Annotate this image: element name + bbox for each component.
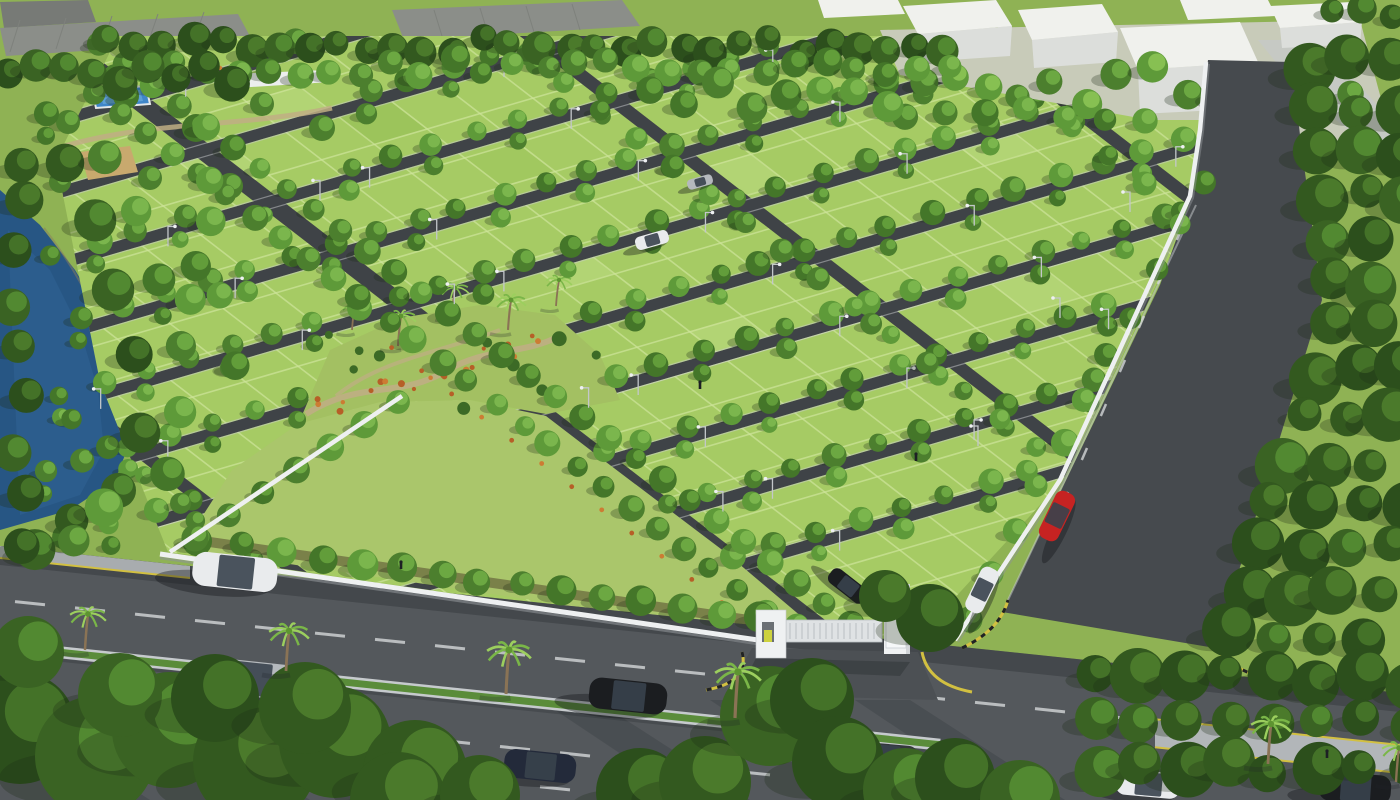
aerial-site-render bbox=[0, 0, 1400, 800]
render-viewport: Aerial 3D architectural render of a gate… bbox=[0, 0, 1400, 800]
